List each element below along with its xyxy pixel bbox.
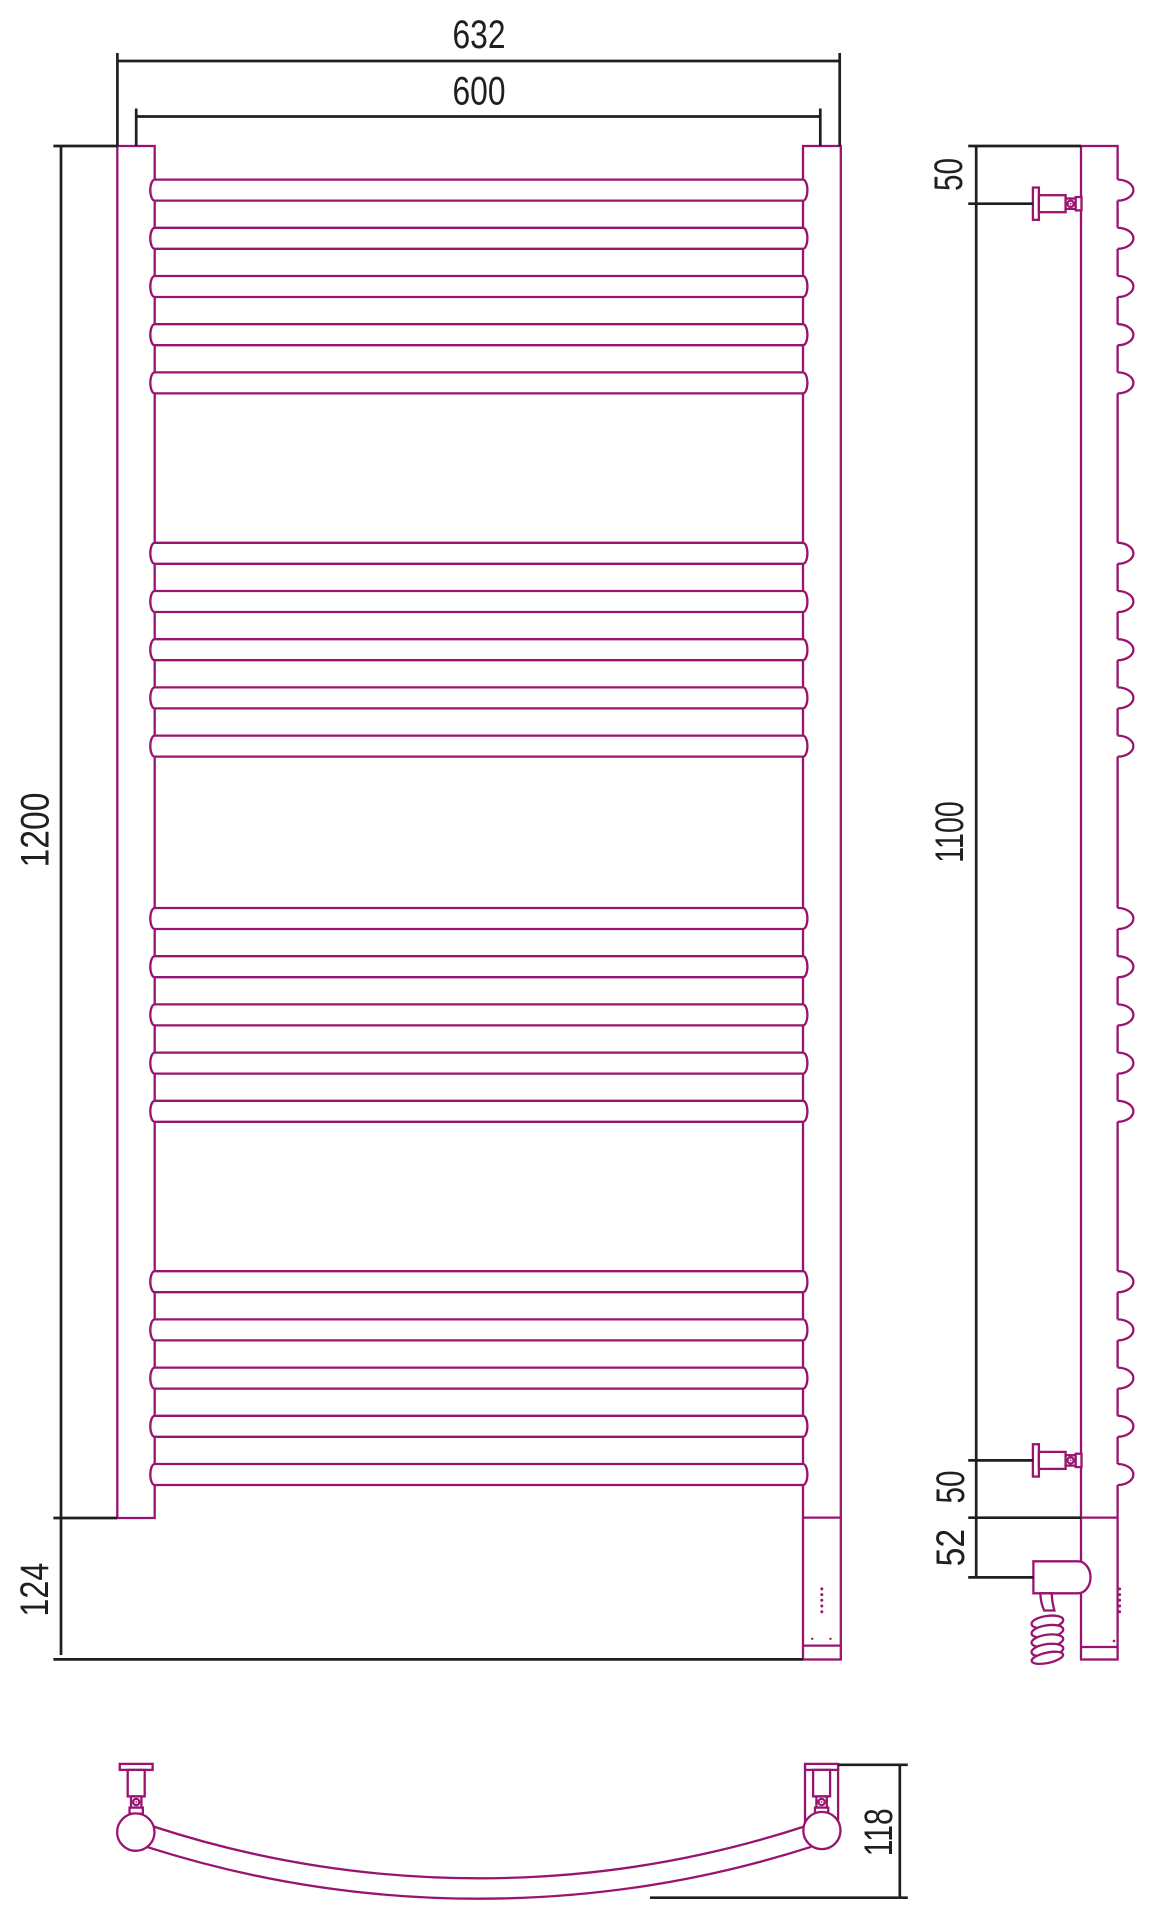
svg-text:1100: 1100 bbox=[928, 801, 972, 863]
svg-text:124: 124 bbox=[13, 1563, 57, 1617]
svg-text:600: 600 bbox=[453, 70, 506, 114]
svg-text:50: 50 bbox=[927, 158, 971, 191]
svg-text:1200: 1200 bbox=[13, 793, 57, 868]
svg-text:118: 118 bbox=[857, 1808, 901, 1856]
svg-text:50: 50 bbox=[929, 1471, 973, 1504]
svg-text:632: 632 bbox=[453, 13, 506, 57]
svg-text:52: 52 bbox=[929, 1529, 973, 1567]
